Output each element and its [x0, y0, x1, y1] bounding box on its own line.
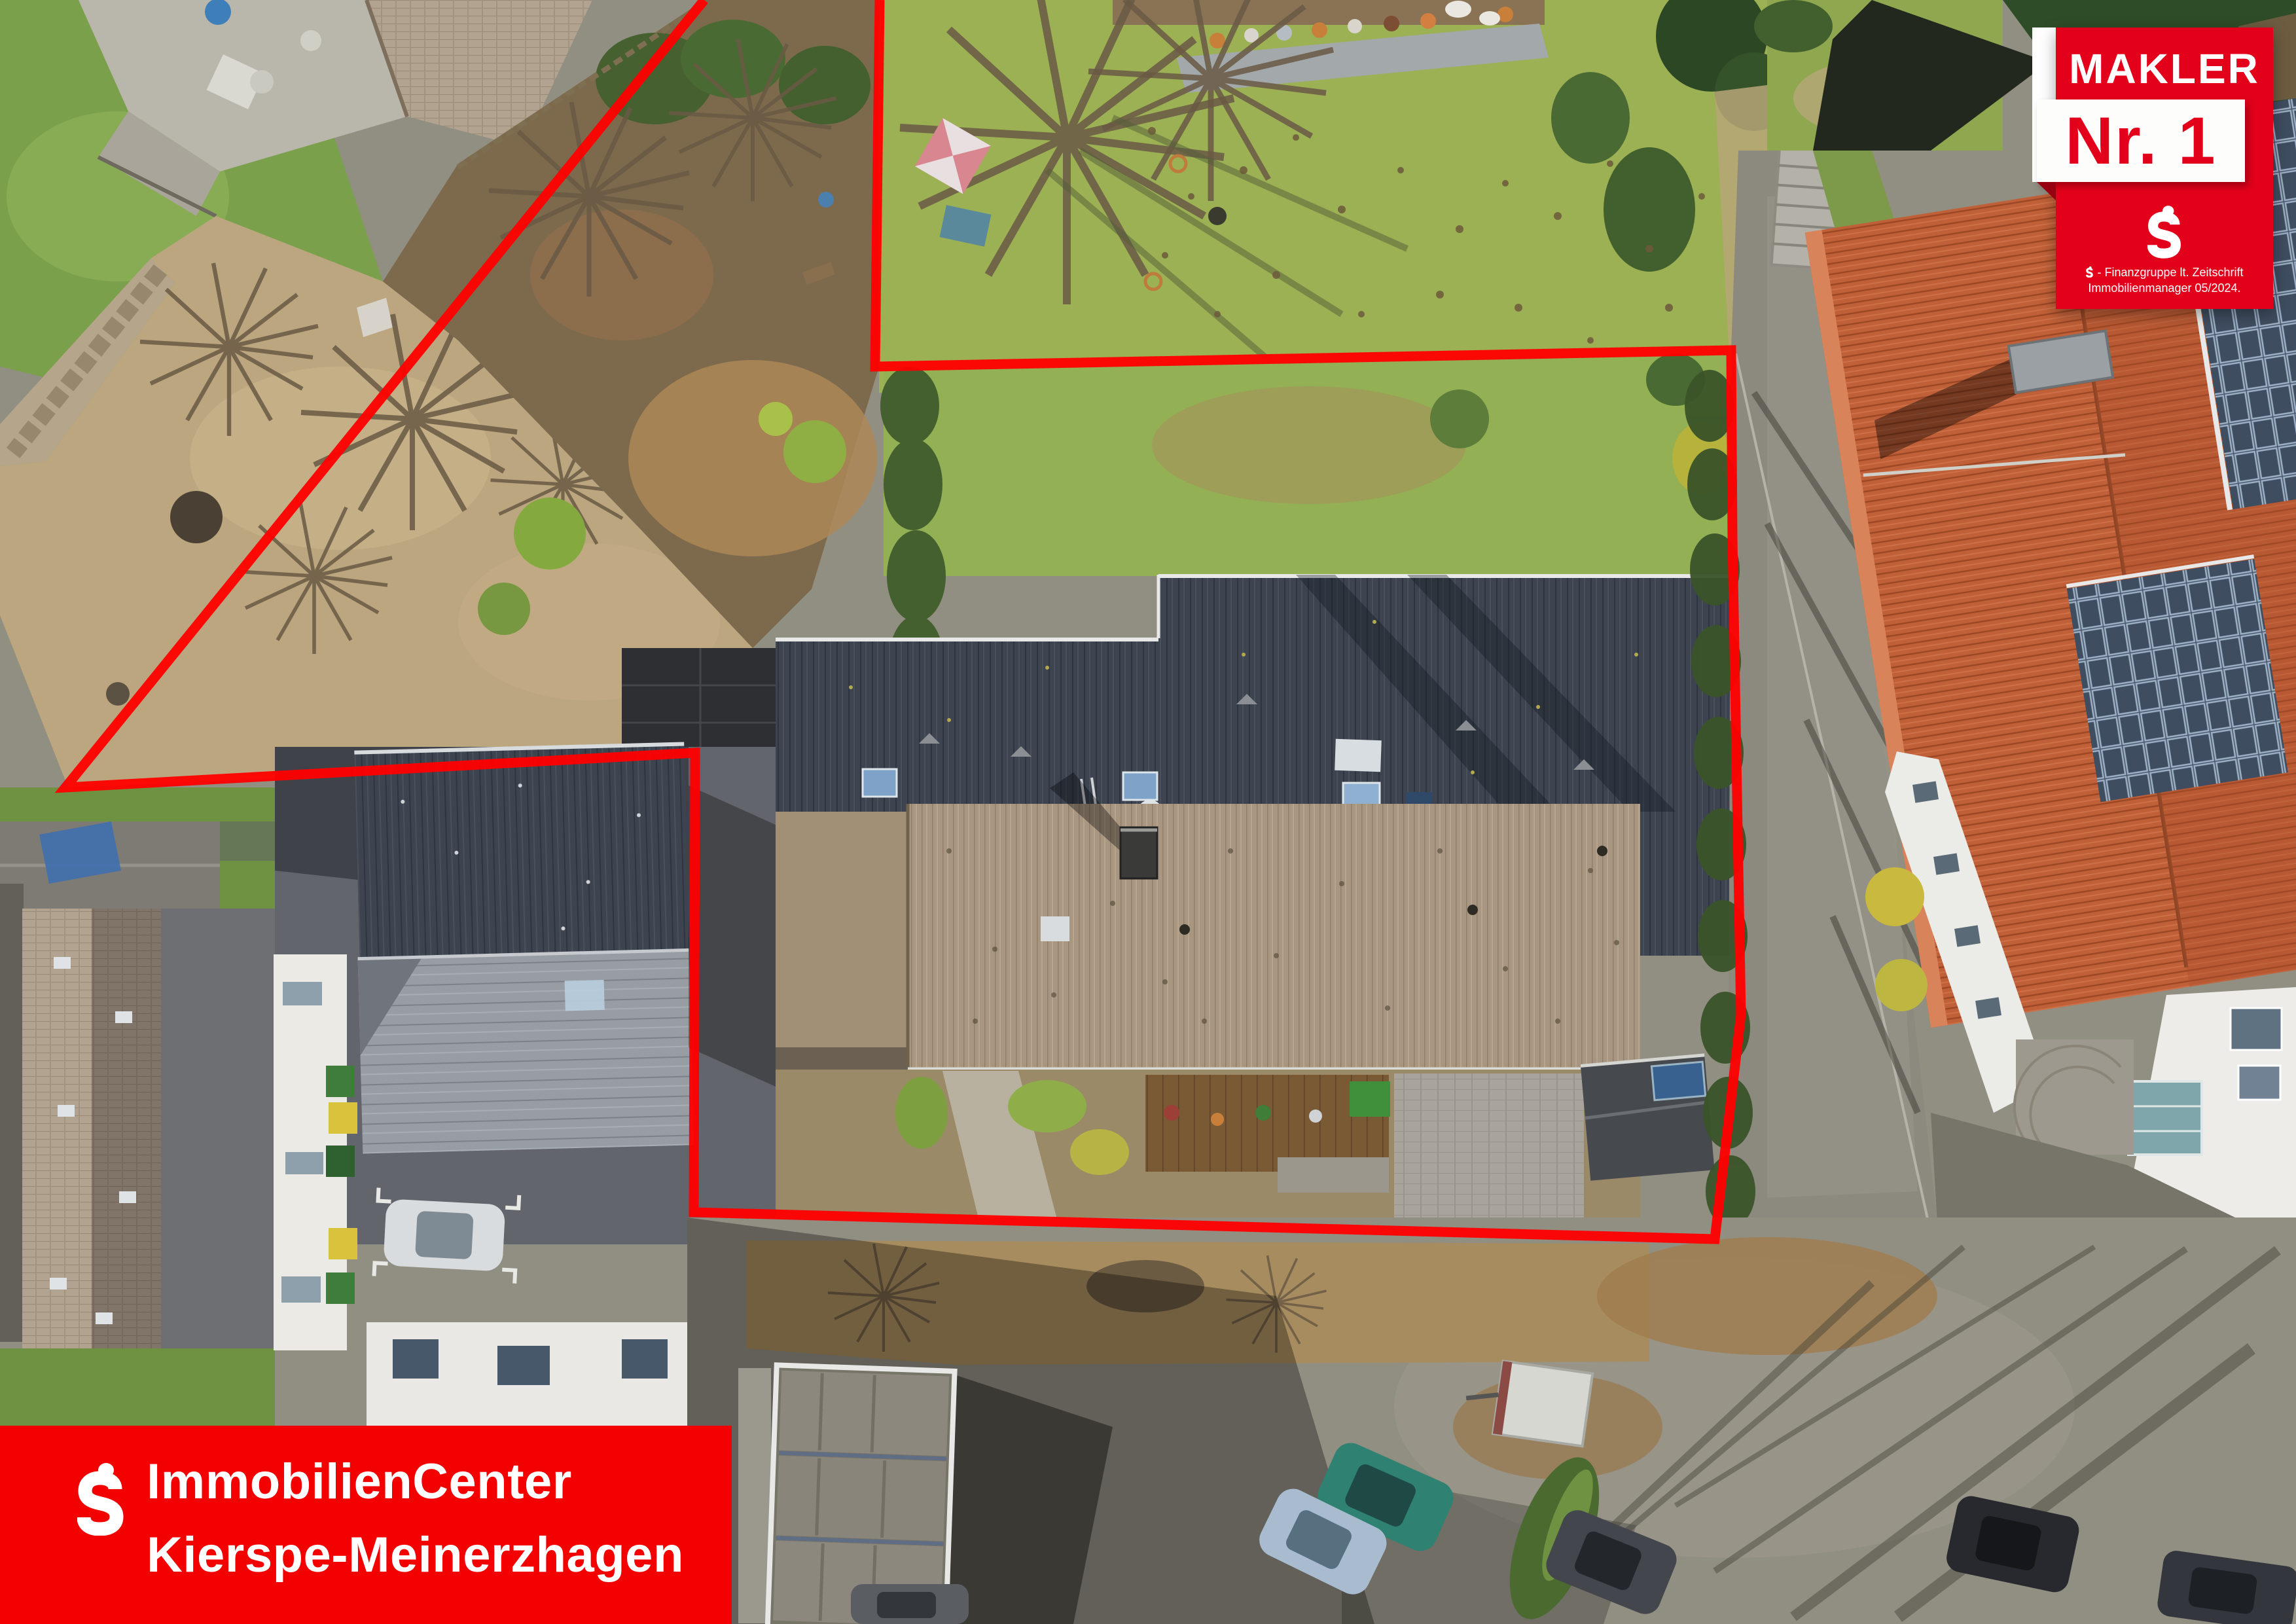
- branding-line1: ImmobilienCenter: [147, 1445, 684, 1519]
- round-bush: [514, 497, 586, 569]
- burn-spot: [170, 491, 223, 543]
- roof-hatch: [1041, 916, 1069, 941]
- badge-disclaimer-line2: Immobilienmanager 05/2024.: [2056, 280, 2273, 296]
- branding-text: ImmobilienCenter Kierspe-Meinerzhagen: [147, 1445, 684, 1592]
- badge-title: MAKLER: [2056, 45, 2273, 93]
- apartment-roof: [0, 884, 161, 1348]
- screenshot: MAKLER Nr. 1 - Finanzgruppe lt. Zeitschr…: [0, 0, 2296, 1624]
- yellow-bush: [1865, 867, 1924, 926]
- sparkasse-s-icon: [2147, 203, 2181, 261]
- sparkasse-s-icon: [77, 1462, 124, 1536]
- main-light-roof: [908, 804, 1640, 1070]
- badge-rank-box: Nr. 1: [2037, 99, 2245, 182]
- barn-shadow: [689, 785, 776, 1087]
- sparkasse-s-icon-small: [2085, 266, 2094, 278]
- badge-ribbon-fold: [2037, 182, 2056, 200]
- badge-rank-text: Nr. 1: [2065, 107, 2216, 174]
- branding-line2: Kierspe-Meinerzhagen: [147, 1519, 684, 1592]
- barn-dark-roof: [354, 742, 689, 957]
- barn: [352, 742, 694, 1153]
- carport-car: [851, 1584, 969, 1624]
- garden-top: [879, 0, 1793, 393]
- green-box: [1350, 1081, 1390, 1117]
- immobiliencenter-branding: ImmobilienCenter Kierspe-Meinerzhagen: [0, 1426, 732, 1624]
- badge-disclaimer-line1: - Finanzgruppe lt. Zeitschrift: [2097, 266, 2243, 279]
- solar-array-2: [2067, 559, 2288, 802]
- main-house: [776, 575, 1731, 1070]
- garage-solar-panel: [1651, 1062, 1705, 1100]
- makler-badge: MAKLER Nr. 1 - Finanzgruppe lt. Zeitschr…: [2032, 27, 2273, 309]
- terrace-band: [776, 1054, 1715, 1233]
- glass-canopy: [2128, 1081, 2202, 1155]
- round-bush: [783, 420, 846, 483]
- leaf-litter: [1597, 1237, 1937, 1355]
- small-garage: [1581, 1054, 1715, 1181]
- yellow-bush: [1875, 959, 1928, 1011]
- aerial-photo: [0, 0, 2296, 1624]
- parking-lot: [687, 1218, 2296, 1624]
- badge-disclaimer: - Finanzgruppe lt. Zeitschrift Immobilie…: [2056, 264, 2273, 296]
- left-wing-roof: [776, 812, 908, 1070]
- main-dark-roof-left: [776, 638, 1158, 812]
- wooden-fence: [1113, 0, 1545, 25]
